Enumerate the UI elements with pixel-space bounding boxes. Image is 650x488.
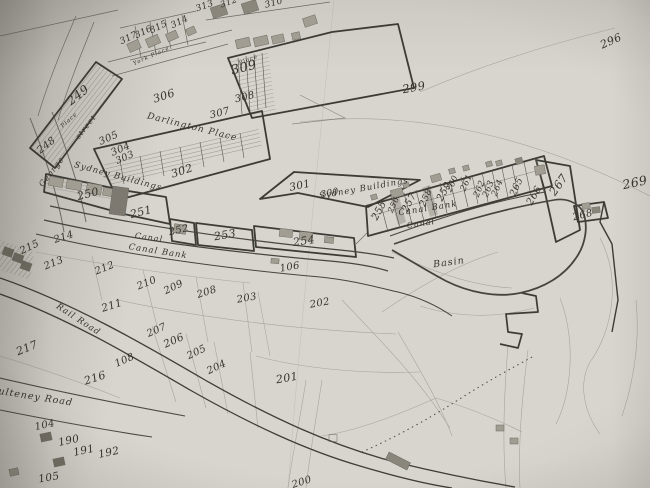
plot-number-65-200: 200 [291,475,313,488]
plot-number-59-201: 201 [275,371,299,386]
plot-number-7-306: 306 [152,87,177,104]
plot-number-48-209: 209 [163,279,186,297]
street-label-14-pulteney-road: Pulteney Road [0,386,74,408]
plot-number-44-213: 213 [43,256,66,273]
plot-number-49-208: 208 [196,285,218,301]
plot-number-18-302: 302 [170,162,195,179]
plot-number-22-251: 251 [129,204,153,220]
plot-number-54-206: 206 [162,332,186,350]
plot-number-52-217: 217 [15,339,40,358]
plot-number-40-268: 268 [572,209,594,224]
street-label-0-york-place: York Place [133,47,171,68]
plot-number-42-215: 215 [19,239,42,257]
plot-number-56-204: 204 [206,359,229,377]
street-label-9-canal-bank: Canal Bank [128,243,188,261]
plot-number-57-216: 216 [83,369,108,386]
plot-number-58-108: 108 [114,352,137,369]
street-label-8-canal: Canal [134,232,163,244]
plot-number-51-202: 202 [309,297,331,310]
plot-number-0-313: 313 [195,0,215,14]
plot-number-24-253: 253 [213,228,237,243]
plot-number-47-210: 210 [136,276,159,293]
plot-number-6-314: 314 [170,15,190,31]
street-label-13-rail-road: Rail Road [54,303,101,338]
plot-number-9-308: 308 [234,91,256,106]
plot-number-45-212: 212 [94,261,117,278]
plot-number-39-267: 267 [548,172,571,198]
plot-number-50-203: 203 [236,292,258,305]
plot-number-55-205: 205 [186,344,209,362]
plot-number-41-269: 269 [621,174,648,191]
plot-number-37-265: 265 [509,176,526,198]
plot-number-2-310: 310 [264,0,284,11]
plot-number-11-299: 299 [402,80,427,95]
map-labels: 3133123103173163153143063093083072992962… [0,0,650,488]
street-label-12-basin: Basin [433,256,466,270]
plot-number-33-261: 261 [460,173,475,192]
plot-number-62-191: 191 [73,444,96,459]
plot-number-63-192: 192 [98,446,121,461]
plot-number-13-249: 249 [65,83,91,107]
street-label-2-place: Place [61,112,80,130]
plot-number-46-211: 211 [100,298,123,315]
plot-number-38-266: 266 [526,185,545,208]
plot-number-19-301: 301 [289,179,312,194]
plot-number-10-307: 307 [209,107,231,122]
plot-number-25-254: 254 [292,234,316,248]
plot-number-26-106: 106 [279,261,301,274]
plot-number-12-296: 296 [599,31,624,50]
plot-number-1-312: 312 [219,0,238,10]
plot-number-32-260: 260 [446,174,461,193]
plot-number-23-252: 252 [168,224,190,238]
plot-number-60-104: 104 [34,419,56,433]
street-label-11-canal: Canal [406,218,435,230]
plot-number-43-214: 214 [53,230,75,246]
plot-number-14-248: 248 [36,136,58,156]
plot-number-5-315: 315 [149,20,169,36]
map-photo: 3133123103173163153143063093083072992962… [0,0,650,488]
plot-number-64-105: 105 [38,471,61,485]
street-label-4-george: George [38,156,66,189]
plot-number-21-250: 250 [76,186,100,202]
